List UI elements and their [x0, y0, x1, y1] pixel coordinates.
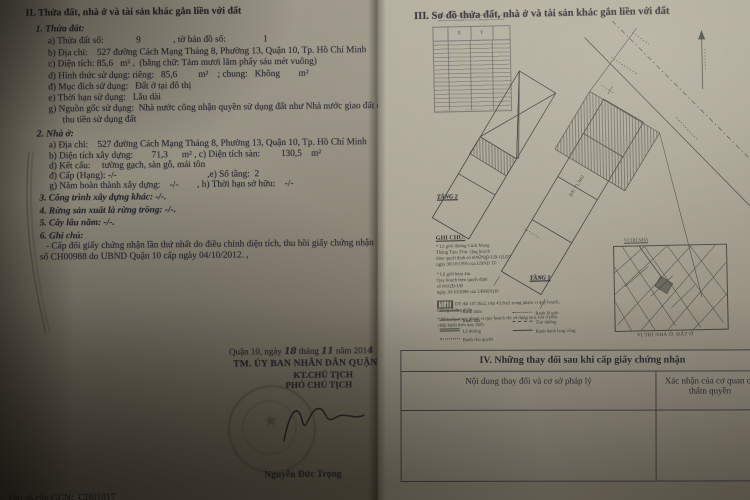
location-map — [613, 244, 729, 332]
page-fold-shadow — [368, 0, 386, 500]
legend-line-double-icon — [440, 328, 460, 335]
section4-col2-header: Xác nhận của cơ quan có thẩm quyền — [656, 371, 750, 409]
section4-empty-body — [402, 410, 750, 481]
legend-line-solid-icon — [439, 320, 459, 323]
legend-line-dashed-icon — [513, 321, 533, 324]
north-arrow-icon — [698, 31, 705, 89]
legend-item: Ranh nhà — [439, 319, 480, 325]
legend-line-dashdot-icon — [512, 312, 532, 315]
legend-item: Lề đường — [440, 328, 481, 336]
ghi-chu-line: ngày 30/10/1995 của UBND TP — [436, 260, 564, 269]
map-caption: VỊ TRÍ NHÀ Ở, ĐẤT Ở — [637, 331, 694, 338]
legend-item: Ranh lộ giới — [512, 311, 558, 317]
legend-item: Tim đường — [513, 320, 557, 326]
legend-item: Ranh thửa — [439, 310, 481, 316]
right-page-content: III. Sơ đồ thửa đất, nhà ở và tài sản kh… — [378, 0, 750, 500]
legend-line-solid-icon — [439, 311, 459, 314]
hatch-key-icon — [437, 300, 453, 308]
ghi-chu-heading: GHI CHÚ: — [436, 232, 564, 243]
document-photo: II. Thửa đất, nhà ở và tài sản khác gắn … — [0, 0, 750, 500]
legend-line-solid-icon — [513, 330, 533, 333]
section4-col1-header: Nội dung thay đổi và cơ sở pháp lý — [401, 372, 656, 410]
certificate-page-left: II. Thửa đất, nhà ở và tài sản khác gắn … — [0, 0, 378, 500]
section4-column-divider — [656, 411, 657, 481]
section4-title: IV. Những thay đổi sau khi cấp giấy chứn… — [401, 350, 750, 372]
floor1-area-label: DT: 71,3m2 — [569, 174, 586, 198]
section4-column-headers: Nội dung thay đổi và cơ sở pháp lý Xác n… — [401, 371, 750, 411]
page-crease — [0, 0, 378, 500]
section4-table: IV. Những thay đổi sau khi cấp giấy chứn… — [400, 349, 750, 482]
floor2-label: TẦNG 2 — [437, 194, 458, 201]
planning-corridor-hatch — [554, 90, 661, 192]
floor-plan-tang-2 — [429, 70, 558, 240]
location-map-streets — [614, 245, 728, 331]
map-pointer-label: VỊ TRÍ NHÀ — [624, 237, 649, 244]
left-page-content: II. Thửa đất, nhà ở và tài sản khác gắn … — [0, 0, 378, 500]
certificate-page-right: III. Sơ đồ thửa đất, nhà ở và tài sản kh… — [378, 0, 750, 500]
legend-line-dashdot-icon — [440, 339, 460, 342]
